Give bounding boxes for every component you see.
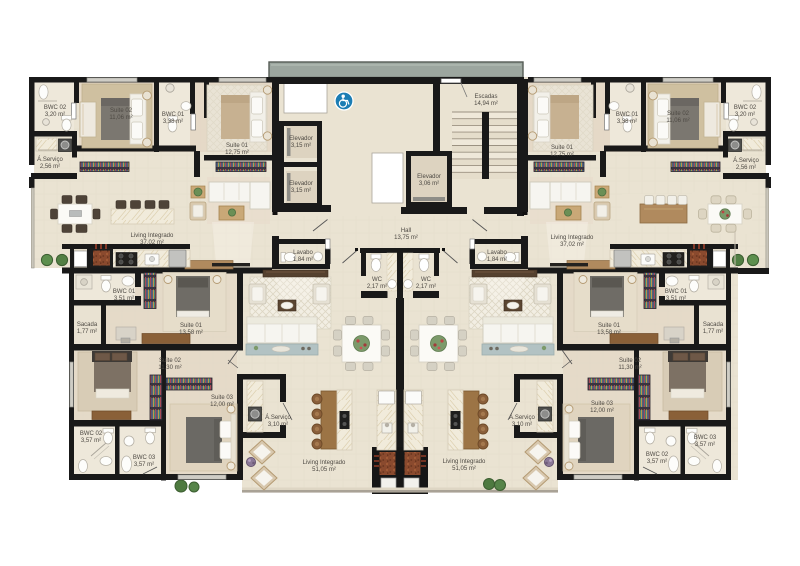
- svg-text:3,10 m²: 3,10 m²: [268, 422, 288, 428]
- svg-text:1,84 m²: 1,84 m²: [293, 257, 313, 263]
- svg-text:2,17 m²: 2,17 m²: [367, 284, 387, 290]
- svg-text:Sacada: Sacada: [703, 322, 724, 328]
- svg-text:Escadas: Escadas: [474, 94, 497, 100]
- svg-text:Suite 02: Suite 02: [619, 358, 642, 364]
- svg-text:Living Integrado: Living Integrado: [551, 235, 594, 241]
- svg-text:Lavabo: Lavabo: [487, 250, 507, 256]
- svg-text:37,02 m²: 37,02 m²: [560, 242, 584, 248]
- svg-text:3,06 m²: 3,06 m²: [419, 181, 439, 187]
- svg-text:3,10 m²: 3,10 m²: [512, 422, 532, 428]
- svg-text:3,51 m²: 3,51 m²: [114, 296, 134, 302]
- svg-text:2,56 m²: 2,56 m²: [736, 165, 756, 171]
- svg-text:11,06 m²: 11,06 m²: [109, 115, 132, 121]
- svg-text:3,38 m²: 3,38 m²: [617, 119, 637, 125]
- svg-text:Suite 02: Suite 02: [667, 111, 690, 117]
- svg-text:Elevador: Elevador: [289, 136, 313, 142]
- svg-text:3,57 m²: 3,57 m²: [134, 462, 154, 468]
- svg-text:BWC 02: BWC 02: [44, 105, 67, 111]
- svg-text:11,06 m²: 11,06 m²: [666, 118, 689, 124]
- svg-text:13,75 m²: 13,75 m²: [394, 235, 418, 241]
- svg-text:2,56 m²: 2,56 m²: [40, 164, 60, 170]
- svg-text:Living Integrado: Living Integrado: [443, 459, 486, 465]
- svg-text:3,38 m²: 3,38 m²: [163, 119, 183, 125]
- svg-text:Á.Serviço: Á.Serviço: [37, 156, 63, 163]
- svg-text:12,75 m²: 12,75 m²: [550, 152, 574, 158]
- svg-text:Suite 01: Suite 01: [180, 323, 203, 329]
- svg-text:Suite 01: Suite 01: [598, 323, 621, 329]
- svg-text:Living Integrado: Living Integrado: [131, 233, 174, 239]
- svg-text:13,58 m²: 13,58 m²: [597, 330, 621, 336]
- svg-text:12,00 m²: 12,00 m²: [590, 408, 614, 414]
- svg-text:WC: WC: [372, 277, 383, 283]
- svg-text:Suite 01: Suite 01: [551, 145, 574, 151]
- svg-text:Suite 03: Suite 03: [591, 401, 614, 407]
- svg-text:11,30 m²: 11,30 m²: [618, 365, 641, 371]
- svg-text:1,77 m²: 1,77 m²: [703, 329, 723, 335]
- svg-text:BWC 02: BWC 02: [646, 452, 669, 458]
- svg-text:BWC 01: BWC 01: [113, 289, 136, 295]
- svg-text:Elevador: Elevador: [289, 181, 313, 187]
- svg-text:1,84 m²: 1,84 m²: [487, 257, 507, 263]
- svg-text:Á.Serviço: Á.Serviço: [265, 414, 291, 421]
- svg-text:3,20 m²: 3,20 m²: [45, 112, 65, 118]
- svg-text:BWC 03: BWC 03: [133, 455, 156, 461]
- svg-text:Elevador: Elevador: [417, 174, 441, 180]
- svg-text:13,58 m²: 13,58 m²: [179, 330, 203, 336]
- svg-text:Suite 02: Suite 02: [159, 358, 182, 364]
- svg-text:BWC 03: BWC 03: [694, 435, 717, 441]
- svg-text:Suite 01: Suite 01: [226, 143, 249, 149]
- svg-text:2,17 m²: 2,17 m²: [416, 284, 436, 290]
- svg-text:14,94 m²: 14,94 m²: [474, 101, 498, 107]
- svg-text:BWC 01: BWC 01: [616, 112, 639, 118]
- svg-text:Suite 02: Suite 02: [110, 108, 133, 114]
- svg-text:3,57 m²: 3,57 m²: [647, 459, 667, 465]
- svg-text:3,51 m²: 3,51 m²: [666, 296, 686, 302]
- svg-text:3,20 m²: 3,20 m²: [735, 112, 755, 118]
- svg-text:3,57 m²: 3,57 m²: [695, 442, 715, 448]
- svg-text:Á.Serviço: Á.Serviço: [509, 414, 535, 421]
- svg-text:Hall: Hall: [401, 228, 411, 234]
- svg-text:Living Integrado: Living Integrado: [303, 460, 346, 466]
- svg-text:BWC 01: BWC 01: [162, 112, 185, 118]
- svg-text:BWC 02: BWC 02: [734, 105, 757, 111]
- svg-text:1,77 m²: 1,77 m²: [77, 329, 97, 335]
- svg-text:12,75 m²: 12,75 m²: [225, 150, 249, 156]
- svg-text:Lavabo: Lavabo: [293, 250, 313, 256]
- svg-text:51,05 m²: 51,05 m²: [452, 466, 476, 472]
- svg-text:3,15 m²: 3,15 m²: [291, 188, 311, 194]
- svg-text:3,15 m²: 3,15 m²: [291, 143, 311, 149]
- svg-text:51,05 m²: 51,05 m²: [312, 467, 336, 473]
- svg-text:Suite 03: Suite 03: [211, 395, 234, 401]
- svg-text:3,57 m²: 3,57 m²: [81, 438, 101, 444]
- svg-text:BWC 01: BWC 01: [665, 289, 688, 295]
- svg-text:Á.Serviço: Á.Serviço: [733, 157, 759, 164]
- svg-text:12,00 m²: 12,00 m²: [210, 402, 234, 408]
- svg-text:BWC 02: BWC 02: [80, 431, 103, 437]
- svg-text:Sacada: Sacada: [77, 322, 98, 328]
- svg-text:11,30 m²: 11,30 m²: [158, 365, 181, 371]
- svg-text:37,02 m²: 37,02 m²: [140, 240, 164, 246]
- svg-text:WC: WC: [421, 277, 432, 283]
